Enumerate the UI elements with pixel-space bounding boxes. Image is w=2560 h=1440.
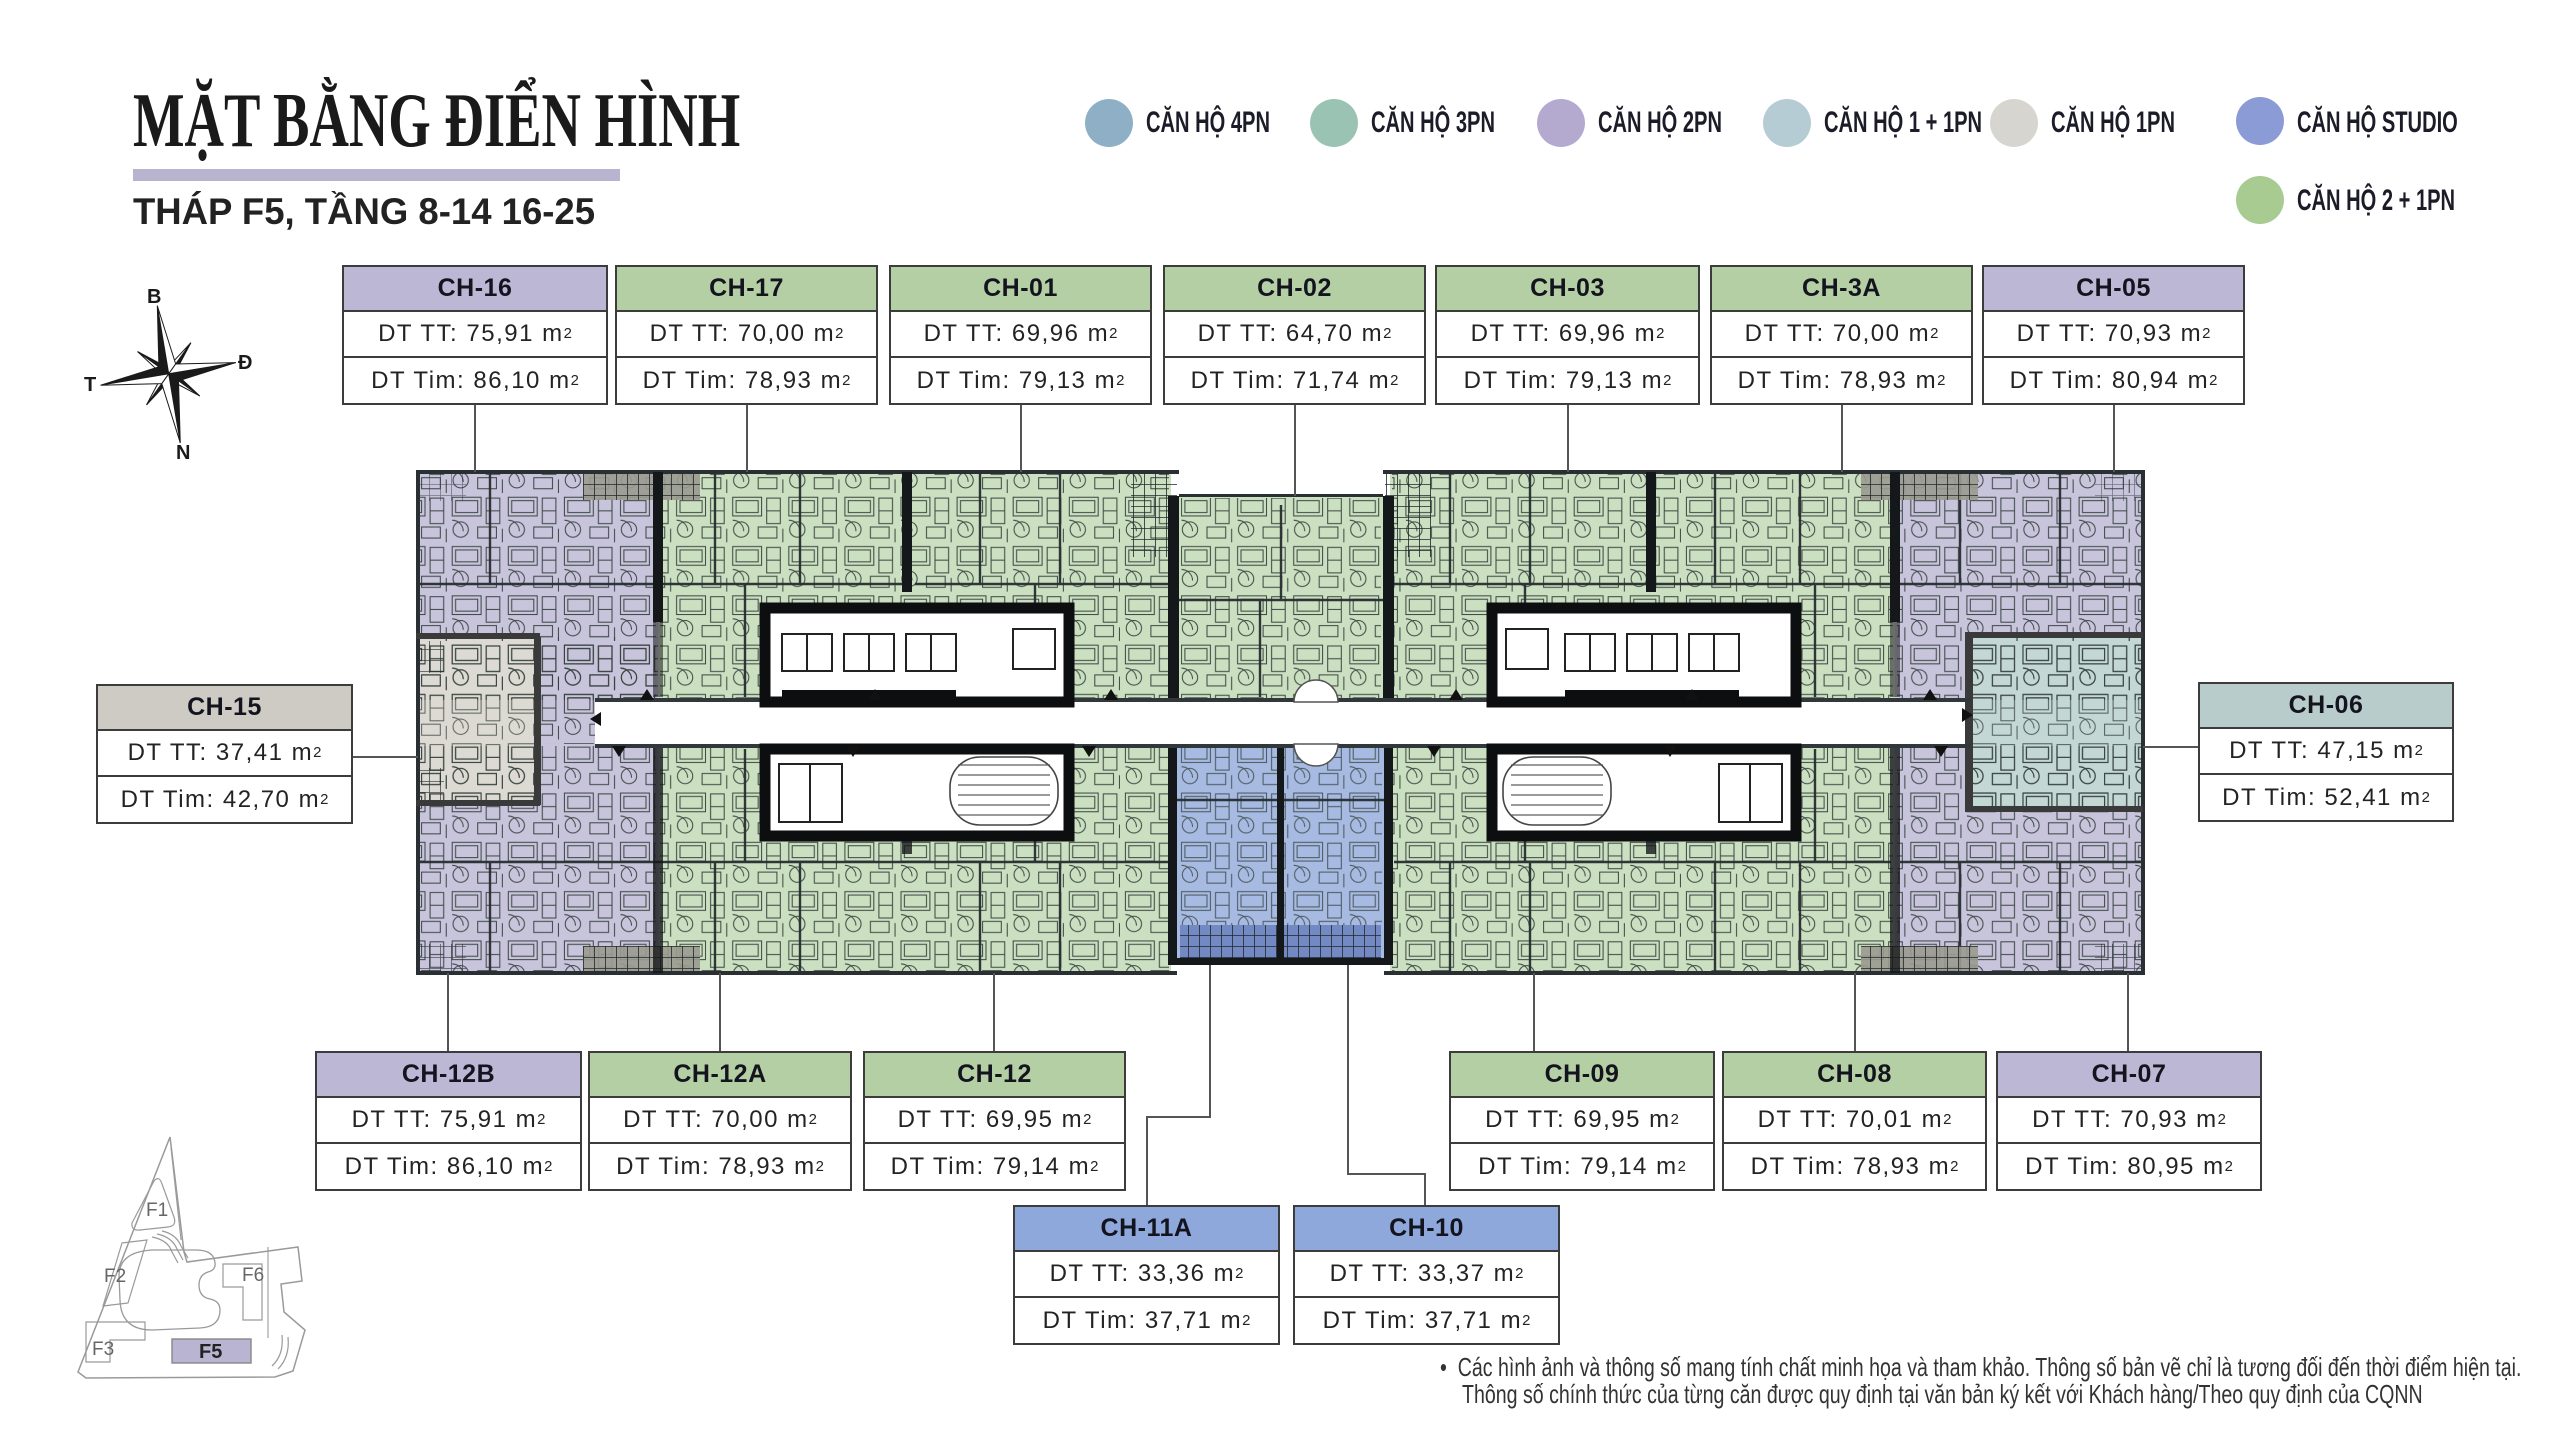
svg-text:F1: F1	[146, 1200, 168, 1221]
svg-text:F3: F3	[92, 1339, 114, 1360]
svg-text:B: B	[147, 286, 161, 308]
svg-text:F6: F6	[242, 1265, 264, 1286]
svg-text:Đ: Đ	[238, 352, 252, 374]
svg-text:N: N	[176, 442, 190, 464]
svg-text:F5: F5	[199, 1341, 222, 1363]
svg-text:F2: F2	[104, 1266, 126, 1287]
svg-text:T: T	[84, 374, 96, 396]
